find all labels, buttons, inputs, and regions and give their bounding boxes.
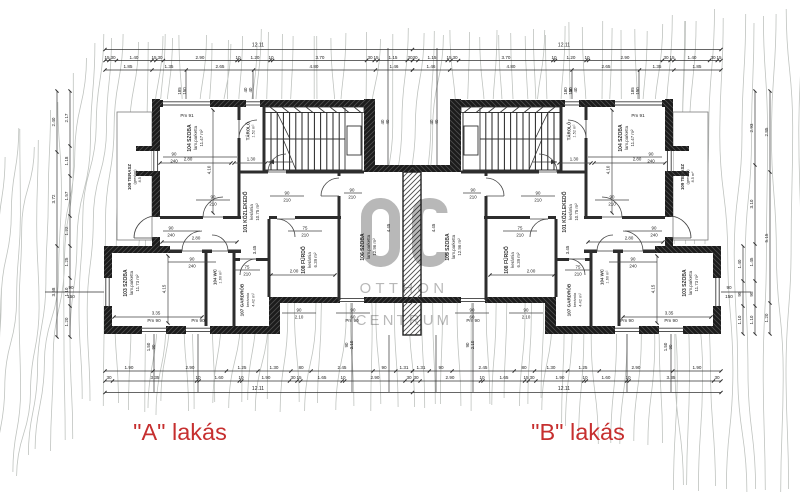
svg-text:"B" lakás: "B" lakás <box>531 419 625 445</box>
svg-text:Pm 90: Pm 90 <box>620 318 634 323</box>
svg-text:2.80: 2.80 <box>192 236 201 241</box>
svg-text:6.39 m²: 6.39 m² <box>313 252 318 267</box>
svg-text:240: 240 <box>650 233 658 238</box>
svg-text:4.45: 4.45 <box>431 223 436 232</box>
svg-text:1.30: 1.30 <box>570 157 579 162</box>
svg-text:1.25: 1.25 <box>238 365 247 370</box>
svg-text:1.90: 1.90 <box>262 375 271 380</box>
svg-text:1.30: 1.30 <box>247 157 256 162</box>
svg-text:15: 15 <box>373 55 379 60</box>
svg-text:210: 210 <box>243 272 251 277</box>
svg-text:1.35: 1.35 <box>165 64 174 69</box>
svg-text:kerámia: kerámia <box>245 292 250 307</box>
svg-text:1.57: 1.57 <box>64 191 69 200</box>
svg-text:10: 10 <box>582 375 588 380</box>
svg-text:40: 40 <box>434 119 439 124</box>
svg-text:4.80: 4.80 <box>507 64 516 69</box>
svg-text:15: 15 <box>446 55 452 60</box>
svg-text:150: 150 <box>182 87 187 95</box>
svg-text:12.11: 12.11 <box>558 386 570 392</box>
svg-text:1.85: 1.85 <box>693 64 702 69</box>
svg-text:2.80: 2.80 <box>625 236 634 241</box>
svg-text:11.47 m²: 11.47 m² <box>630 129 635 147</box>
svg-text:2.00: 2.00 <box>290 269 299 274</box>
svg-text:90: 90 <box>172 152 177 157</box>
svg-text:TÁROLÓ: TÁROLÓ <box>246 121 251 140</box>
svg-text:90: 90 <box>211 195 216 200</box>
svg-text:lam.parketta: lam.parketta <box>688 270 693 295</box>
svg-text:90: 90 <box>649 152 654 157</box>
svg-text:104 WC: 104 WC <box>600 268 605 285</box>
svg-text:30: 30 <box>529 375 535 380</box>
svg-text:1.30: 1.30 <box>547 365 556 370</box>
svg-text:1.31: 1.31 <box>400 365 409 370</box>
svg-text:240: 240 <box>188 264 196 269</box>
svg-text:90: 90 <box>652 226 657 231</box>
svg-text:OTTHON: OTTHON <box>360 281 449 297</box>
svg-text:1.20: 1.20 <box>64 317 69 326</box>
svg-text:1.15: 1.15 <box>428 55 437 60</box>
svg-text:4.10: 4.10 <box>207 165 212 174</box>
svg-text:4.10: 4.10 <box>606 165 611 174</box>
svg-text:10: 10 <box>268 55 274 60</box>
svg-text:10: 10 <box>479 375 485 380</box>
svg-text:10: 10 <box>235 55 241 60</box>
svg-text:2.90: 2.90 <box>632 365 641 370</box>
svg-text:12.11: 12.11 <box>252 43 264 49</box>
svg-text:2.17: 2.17 <box>64 113 69 122</box>
svg-text:1.90: 1.90 <box>693 365 702 370</box>
svg-text:210: 210 <box>574 272 582 277</box>
svg-text:240: 240 <box>647 159 655 164</box>
svg-text:30: 30 <box>452 55 458 60</box>
svg-text:Pm 91: Pm 91 <box>631 113 645 118</box>
svg-text:11.73 m²: 11.73 m² <box>135 274 140 292</box>
svg-text:Pm 90: Pm 90 <box>147 318 161 323</box>
svg-text:30: 30 <box>110 55 116 60</box>
svg-text:75: 75 <box>576 265 581 270</box>
svg-text:10.75 m²: 10.75 m² <box>574 203 579 221</box>
svg-text:30: 30 <box>106 375 112 380</box>
svg-text:90: 90 <box>151 344 156 349</box>
svg-text:90: 90 <box>297 308 302 313</box>
svg-text:90: 90 <box>169 226 174 231</box>
svg-text:12.11: 12.11 <box>558 43 570 49</box>
svg-text:lam.parketta: lam.parketta <box>451 234 456 259</box>
svg-text:2.85: 2.85 <box>764 127 769 136</box>
svg-text:TÁROLÓ: TÁROLÓ <box>567 121 572 140</box>
svg-text:30: 30 <box>157 55 163 60</box>
svg-text:240: 240 <box>629 264 637 269</box>
svg-text:2.90: 2.90 <box>196 55 205 60</box>
svg-text:2.90: 2.90 <box>446 375 455 380</box>
svg-text:4.42 m²: 4.42 m² <box>577 293 582 307</box>
svg-text:90: 90 <box>610 195 615 200</box>
svg-text:90: 90 <box>68 285 74 290</box>
svg-text:80: 80 <box>298 365 304 370</box>
svg-text:210: 210 <box>301 233 309 238</box>
svg-text:210: 210 <box>608 202 616 207</box>
svg-text:15: 15 <box>104 55 110 60</box>
svg-text:90: 90 <box>285 191 290 196</box>
svg-text:2.10: 2.10 <box>470 340 475 349</box>
svg-text:1.45: 1.45 <box>749 257 754 266</box>
svg-text:12.11: 12.11 <box>252 386 264 392</box>
svg-text:30: 30 <box>413 375 419 380</box>
svg-text:80: 80 <box>521 365 527 370</box>
svg-text:CENTRUM: CENTRUM <box>356 313 452 329</box>
svg-text:90: 90 <box>668 344 673 349</box>
svg-text:90: 90 <box>381 365 387 370</box>
svg-text:2.90: 2.90 <box>371 375 380 380</box>
svg-text:kerámia: kerámia <box>307 252 312 268</box>
svg-text:1.60: 1.60 <box>602 375 611 380</box>
svg-text:30: 30 <box>663 55 669 60</box>
svg-text:90: 90 <box>190 257 195 262</box>
svg-text:210: 210 <box>283 198 291 203</box>
svg-text:1.25: 1.25 <box>579 365 588 370</box>
svg-text:1.10: 1.10 <box>749 315 754 324</box>
svg-text:1.10: 1.10 <box>737 315 742 324</box>
svg-text:1.35: 1.35 <box>653 64 662 69</box>
svg-text:Pm 90: Pm 90 <box>664 318 678 323</box>
svg-text:2.90: 2.90 <box>621 55 630 60</box>
svg-text:1.15: 1.15 <box>389 55 398 60</box>
svg-text:75: 75 <box>303 226 308 231</box>
svg-text:90: 90 <box>351 308 356 313</box>
svg-text:3.45: 3.45 <box>565 245 570 254</box>
svg-text:1.52 m²: 1.52 m² <box>573 124 577 138</box>
svg-text:3.35: 3.35 <box>665 311 674 316</box>
svg-text:15: 15 <box>716 55 722 60</box>
svg-text:210: 210 <box>516 233 524 238</box>
svg-text:2.10: 2.10 <box>295 315 304 320</box>
svg-text:10: 10 <box>584 55 590 60</box>
svg-text:1.20: 1.20 <box>764 313 769 322</box>
svg-text:6.39 m²: 6.39 m² <box>516 252 521 267</box>
svg-text:1.20: 1.20 <box>251 55 260 60</box>
svg-text:109 TERASZ: 109 TERASZ <box>127 164 132 190</box>
svg-text:150: 150 <box>568 87 573 95</box>
svg-text:lam.parketta: lam.parketta <box>129 270 134 295</box>
svg-text:30: 30 <box>714 375 720 380</box>
svg-text:10: 10 <box>340 375 346 380</box>
svg-text:10: 10 <box>625 375 631 380</box>
svg-text:40: 40 <box>385 119 390 124</box>
svg-text:3.35: 3.35 <box>151 375 160 380</box>
svg-text:2.10: 2.10 <box>522 315 531 320</box>
svg-text:lam.parketta: lam.parketta <box>624 125 629 150</box>
svg-text:3.72: 3.72 <box>51 194 56 203</box>
svg-text:1.40: 1.40 <box>688 55 697 60</box>
svg-text:15: 15 <box>151 55 157 60</box>
svg-text:12.96 m²: 12.96 m² <box>457 238 462 256</box>
svg-text:90: 90 <box>471 188 476 193</box>
svg-text:90: 90 <box>438 365 444 370</box>
svg-text:3.45: 3.45 <box>252 245 257 254</box>
svg-text:1.31: 1.31 <box>417 365 426 370</box>
svg-text:1.46: 1.46 <box>390 64 399 69</box>
svg-text:kerámia: kerámia <box>510 252 515 268</box>
svg-text:1.18: 1.18 <box>64 156 69 165</box>
svg-text:30: 30 <box>290 375 296 380</box>
svg-text:90: 90 <box>470 308 475 313</box>
svg-text:10.75 m²: 10.75 m² <box>255 203 260 221</box>
svg-text:15: 15 <box>523 375 529 380</box>
svg-text:104 WC: 104 WC <box>213 268 218 285</box>
svg-text:1.46: 1.46 <box>427 64 436 69</box>
svg-text:2.45: 2.45 <box>338 365 347 370</box>
svg-text:3.70: 3.70 <box>316 55 325 60</box>
svg-text:Pm 90: Pm 90 <box>466 318 480 323</box>
svg-text:30: 30 <box>406 375 412 380</box>
svg-text:1.65: 1.65 <box>318 375 327 380</box>
svg-text:5.15: 5.15 <box>764 233 769 242</box>
svg-text:kerámia: kerámia <box>249 204 254 220</box>
svg-text:(greslap): (greslap) <box>686 169 690 185</box>
svg-text:1.25: 1.25 <box>64 257 69 266</box>
svg-text:3.70: 3.70 <box>502 55 511 60</box>
svg-text:11.73 m²: 11.73 m² <box>694 274 699 292</box>
svg-text:1.65: 1.65 <box>500 375 509 380</box>
svg-text:210: 210 <box>348 195 356 200</box>
svg-text:210: 210 <box>469 195 477 200</box>
svg-text:2.90: 2.90 <box>186 365 195 370</box>
svg-text:240: 240 <box>170 159 178 164</box>
svg-text:Pm 90: Pm 90 <box>191 318 205 323</box>
svg-text:107 GARDRÓB: 107 GARDRÓB <box>238 283 245 316</box>
svg-text:kerámia: kerámia <box>568 204 573 220</box>
svg-text:1.30: 1.30 <box>270 365 279 370</box>
svg-text:10: 10 <box>551 55 557 60</box>
svg-text:1.22: 1.22 <box>64 226 69 235</box>
svg-text:2.40: 2.40 <box>51 117 56 126</box>
svg-text:kerámia: kerámia <box>572 292 577 307</box>
svg-text:3.35: 3.35 <box>152 311 161 316</box>
svg-text:30: 30 <box>710 55 716 60</box>
svg-text:109 TERASZ: 109 TERASZ <box>680 164 685 190</box>
svg-text:11.47 m²: 11.47 m² <box>199 129 204 147</box>
svg-text:1.90: 1.90 <box>125 365 134 370</box>
svg-text:240: 240 <box>167 233 175 238</box>
svg-text:1.60: 1.60 <box>215 375 224 380</box>
svg-text:1.85: 1.85 <box>124 64 133 69</box>
svg-text:lam.parketta: lam.parketta <box>193 125 198 150</box>
svg-text:8.5 m²: 8.5 m² <box>691 171 695 182</box>
svg-text:30: 30 <box>412 55 418 60</box>
svg-text:1.90: 1.90 <box>556 375 565 380</box>
svg-text:"A" lakás: "A" lakás <box>133 419 227 445</box>
svg-text:40: 40 <box>573 87 578 92</box>
svg-text:1.40: 1.40 <box>130 55 139 60</box>
svg-text:90: 90 <box>524 308 529 313</box>
svg-text:40: 40 <box>248 87 253 92</box>
svg-text:15: 15 <box>296 375 302 380</box>
svg-text:1.60 m²: 1.60 m² <box>219 270 223 284</box>
svg-text:1.20: 1.20 <box>567 55 576 60</box>
svg-text:30: 30 <box>367 55 373 60</box>
svg-text:Pm 91: Pm 91 <box>180 113 194 118</box>
svg-text:4.15: 4.15 <box>651 284 656 293</box>
svg-text:1.52 m²: 1.52 m² <box>252 124 256 138</box>
svg-text:150: 150 <box>67 294 75 299</box>
svg-text:2.93: 2.93 <box>749 123 754 132</box>
svg-text:75: 75 <box>518 226 523 231</box>
svg-text:2.65: 2.65 <box>602 64 611 69</box>
svg-text:107 GARDRÓB: 107 GARDRÓB <box>565 283 572 316</box>
svg-text:2.00: 2.00 <box>527 269 536 274</box>
svg-text:1.60 m²: 1.60 m² <box>606 270 610 284</box>
svg-text:8.5 m²: 8.5 m² <box>138 171 142 182</box>
svg-text:4.80: 4.80 <box>310 64 319 69</box>
svg-text:210: 210 <box>209 202 217 207</box>
svg-text:90: 90 <box>350 188 355 193</box>
svg-text:2.65: 2.65 <box>216 64 225 69</box>
svg-text:4.15: 4.15 <box>162 284 167 293</box>
svg-text:90: 90 <box>631 257 636 262</box>
svg-text:210: 210 <box>534 198 542 203</box>
svg-text:10: 10 <box>238 375 244 380</box>
svg-text:150: 150 <box>635 87 640 95</box>
svg-text:4.42 m²: 4.42 m² <box>250 293 255 307</box>
svg-text:90: 90 <box>536 191 541 196</box>
svg-text:2.10: 2.10 <box>349 340 354 349</box>
svg-text:3.10: 3.10 <box>749 199 754 208</box>
svg-text:1.40: 1.40 <box>737 259 742 268</box>
svg-text:(greslap): (greslap) <box>133 169 137 185</box>
svg-text:90: 90 <box>726 285 732 290</box>
svg-text:15: 15 <box>669 55 675 60</box>
svg-text:75: 75 <box>245 265 250 270</box>
svg-text:150: 150 <box>725 294 733 299</box>
svg-text:2.45: 2.45 <box>479 365 488 370</box>
